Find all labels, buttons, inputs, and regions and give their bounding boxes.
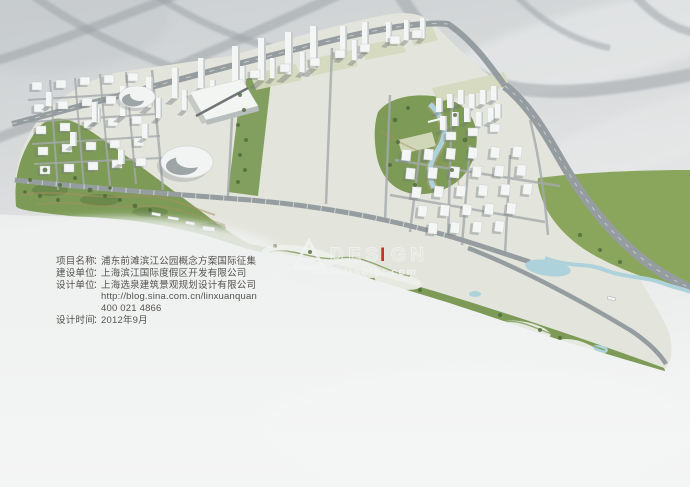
info-value: http://blog.sina.com.cn/linxuanquan <box>101 291 286 303</box>
info-label: 建设单位 <box>56 268 93 280</box>
watermark-brand-post: GN <box>391 245 429 266</box>
info-label <box>56 303 93 315</box>
watermark-brand-pre: DES <box>330 245 383 266</box>
info-row-blog-url: http://blog.sina.com.cn/linxuanquan <box>56 291 286 303</box>
small-pond <box>469 291 481 297</box>
info-label <box>56 291 93 303</box>
info-value: 2012年9月 <box>101 315 286 327</box>
info-value: 400 021 4866 <box>101 303 286 315</box>
info-value: 上海选泉建筑景观规划设计有限公司 <box>101 280 286 292</box>
masterplan-rendering: DES I GN www.linoliu.com <box>0 0 690 487</box>
info-separator: ： <box>93 256 101 268</box>
info-label: 设计单位 <box>56 280 93 292</box>
info-separator: ： <box>93 268 101 280</box>
watermark-url: www.linoliu.com <box>310 266 417 278</box>
info-value: 浦东前滩滨江公园概念方案国际征集 <box>101 256 286 268</box>
info-value: 上海滨江国际度假区开发有限公司 <box>101 268 286 280</box>
info-separator: ： <box>93 315 101 327</box>
info-separator <box>93 291 101 303</box>
info-row-designer: 设计单位：上海选泉建筑景观规划设计有限公司 <box>56 280 286 292</box>
info-row-project-name: 项目名称：浦东前滩滨江公园概念方案国际征集 <box>56 256 286 268</box>
aerial-masterplan-page: DES I GN www.linoliu.com 项目名称：浦东前滩滨江公园概念… <box>0 0 690 487</box>
project-info-panel: 项目名称：浦东前滩滨江公园概念方案国际征集 建设单位：上海滨江国际度假区开发有限… <box>56 256 286 327</box>
info-separator: ： <box>93 280 101 292</box>
watermark-red-i-mark: I <box>380 245 385 266</box>
info-label: 项目名称 <box>56 256 93 268</box>
info-row-phone: 400 021 4866 <box>56 303 286 315</box>
info-row-design-date: 设计时间：2012年9月 <box>56 315 286 327</box>
info-row-client: 建设单位：上海滨江国际度假区开发有限公司 <box>56 268 286 280</box>
info-separator <box>93 303 101 315</box>
info-label: 设计时间 <box>56 315 93 327</box>
